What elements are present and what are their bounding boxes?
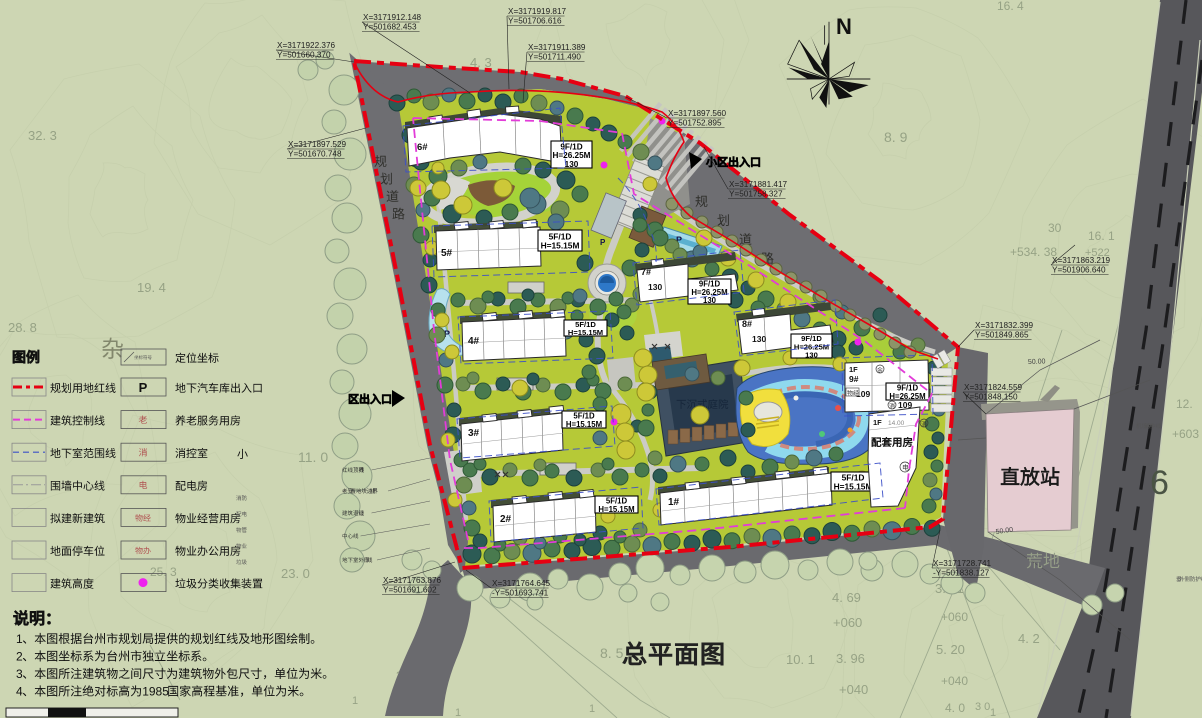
svg-text:4#: 4#	[468, 336, 480, 347]
svg-text:130: 130	[565, 160, 579, 169]
svg-text:23. 0: 23. 0	[281, 566, 310, 581]
svg-text:16. 1: 16. 1	[1088, 229, 1115, 243]
svg-text:9#: 9#	[849, 374, 859, 384]
svg-text:130: 130	[805, 350, 818, 359]
svg-text:X=3171897.560: X=3171897.560	[668, 109, 726, 118]
svg-text:1: 1	[352, 695, 358, 707]
svg-text:8. 5: 8. 5	[600, 645, 624, 661]
svg-text:130: 130	[703, 296, 717, 305]
svg-text:防: 防	[242, 494, 248, 502]
svg-text:Y=501711.490: Y=501711.490	[528, 53, 581, 62]
svg-text:X=3171728.741: X=3171728.741	[933, 559, 991, 568]
svg-text:+060: +060	[941, 610, 968, 624]
svg-text:130: 130	[752, 334, 766, 344]
svg-text:8. 9: 8. 9	[884, 129, 908, 145]
svg-text:+040: +040	[839, 682, 868, 697]
svg-text:4. 2: 4. 2	[1018, 631, 1040, 646]
svg-text:1F: 1F	[873, 418, 882, 427]
svg-text:机场侧: 机场侧	[1136, 422, 1153, 430]
svg-text:32. 3: 32. 3	[28, 128, 57, 143]
svg-text:3: 3	[16, 667, 23, 681]
svg-text:X=3171922.376: X=3171922.376	[277, 41, 335, 50]
svg-text:X=3171912.148: X=3171912.148	[363, 13, 421, 22]
svg-text:Y=501906.640: Y=501906.640	[1052, 266, 1106, 275]
svg-text:14.00: 14.00	[888, 420, 905, 427]
svg-text:X=3171897.529: X=3171897.529	[288, 140, 346, 149]
svg-text:块边界: 块边界	[361, 487, 378, 495]
svg-text:+040: +040	[941, 674, 968, 688]
svg-text:Y=501849.865: Y=501849.865	[975, 331, 1029, 340]
svg-text:4. 0: 4. 0	[945, 701, 965, 715]
svg-text:P: P	[139, 380, 148, 395]
svg-text:12.: 12.	[1176, 397, 1193, 411]
svg-text:N: N	[836, 14, 852, 39]
svg-text:5. 20: 5. 20	[936, 642, 965, 657]
svg-text:130: 130	[648, 282, 662, 292]
svg-text:6#: 6#	[417, 142, 428, 153]
svg-text:+534. 38: +534. 38	[1010, 245, 1057, 259]
svg-text:6: 6	[1150, 464, 1169, 502]
svg-text:安: 安	[348, 487, 354, 495]
svg-text:+603: +603	[1172, 427, 1199, 441]
svg-text:2#: 2#	[500, 514, 512, 525]
svg-text:Y=501691.602: Y=501691.602	[383, 586, 437, 595]
svg-text:X=3171764.645: X=3171764.645	[492, 579, 550, 588]
svg-text:Y=501706.616: Y=501706.616	[508, 17, 562, 26]
svg-text:-Y=501838.127: -Y=501838.127	[933, 569, 990, 578]
svg-text:3 0: 3 0	[975, 701, 990, 713]
svg-text:3#: 3#	[468, 428, 480, 439]
svg-text:30: 30	[1048, 221, 1062, 235]
svg-text:16. 4: 16. 4	[997, 0, 1024, 13]
svg-text:Y=501758.327: Y=501758.327	[729, 190, 783, 199]
svg-text:1: 1	[16, 632, 23, 646]
svg-text:2: 2	[16, 650, 23, 664]
svg-text:3. 96: 3. 96	[836, 651, 865, 666]
svg-text:Y=501752.895: Y=501752.895	[668, 119, 722, 128]
svg-text:X=3171824.559: X=3171824.559	[964, 383, 1022, 392]
svg-text:X=3171863.219: X=3171863.219	[1052, 256, 1110, 265]
svg-text:H=15.15M: H=15.15M	[568, 328, 603, 337]
svg-text:X=3171911.389: X=3171911.389	[528, 43, 586, 52]
svg-text:1: 1	[990, 707, 996, 718]
svg-text:25. 3: 25. 3	[150, 565, 177, 579]
svg-text:X=3171919.817: X=3171919.817	[508, 7, 566, 16]
svg-text:P: P	[600, 238, 606, 247]
svg-text:Y=501848.150: Y=501848.150	[964, 393, 1018, 402]
svg-text:H=15.15M: H=15.15M	[566, 420, 602, 429]
svg-text:Y=501660.370: Y=501660.370	[277, 51, 331, 60]
svg-text:11. 0: 11. 0	[298, 449, 328, 465]
svg-text:4. 69: 4. 69	[832, 590, 861, 605]
svg-text:X=3171832.399: X=3171832.399	[975, 321, 1033, 330]
svg-text:28. 8: 28. 8	[8, 320, 37, 335]
svg-text:1985: 1985	[142, 685, 169, 699]
svg-text:顶界: 顶界	[353, 467, 365, 474]
svg-text:1: 1	[589, 703, 595, 715]
svg-text:19. 4: 19. 4	[137, 280, 166, 295]
svg-text:退让: 退让	[353, 509, 365, 517]
svg-text:管: 管	[242, 526, 248, 534]
svg-text:廓: 廓	[364, 556, 370, 564]
svg-text:H=15.15M: H=15.15M	[834, 481, 873, 491]
svg-text:H=26.25M: H=26.25M	[552, 151, 590, 160]
svg-text:1#: 1#	[668, 497, 680, 508]
svg-text:度: 度	[83, 577, 94, 591]
svg-text:H=15.15M: H=15.15M	[541, 240, 580, 250]
svg-text:-Y=501693.741: -Y=501693.741	[492, 589, 549, 598]
svg-text:1F: 1F	[849, 365, 858, 374]
svg-text:Y=501682.453: Y=501682.453	[363, 23, 417, 32]
svg-text:X=3171881.417: X=3171881.417	[729, 180, 787, 189]
svg-text:50.00: 50.00	[1028, 358, 1046, 366]
svg-text:Y=501670.748: Y=501670.748	[288, 150, 342, 159]
svg-text:10. 1: 10. 1	[786, 652, 815, 667]
svg-text:8#: 8#	[742, 319, 752, 329]
svg-text:X=3171763.876: X=3171763.876	[383, 576, 441, 585]
svg-text:符号: 符号	[143, 354, 152, 361]
svg-text:4: 4	[16, 685, 23, 699]
svg-text:7#: 7#	[641, 267, 651, 277]
svg-text:1: 1	[455, 707, 461, 718]
svg-text:5#: 5#	[441, 248, 453, 259]
svg-text:H=15.15M: H=15.15M	[598, 505, 634, 514]
svg-text:+060: +060	[833, 615, 862, 630]
svg-text:侧防护绿带: 侧防护绿带	[1184, 575, 1202, 583]
